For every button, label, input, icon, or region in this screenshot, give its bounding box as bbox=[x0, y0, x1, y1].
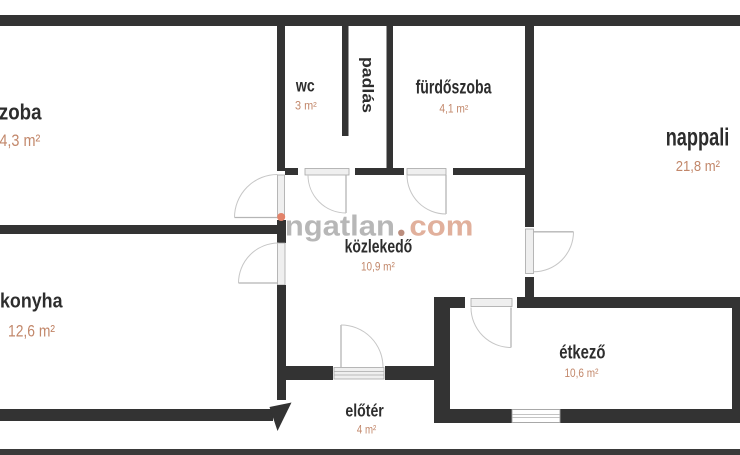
svg-text:3 m²: 3 m² bbox=[295, 101, 317, 113]
svg-text:ngatlan: ngatlan bbox=[285, 211, 395, 243]
svg-text:4 m²: 4 m² bbox=[357, 423, 376, 437]
svg-text:wc: wc bbox=[295, 76, 315, 96]
svg-text:fürdőszoba: fürdőszoba bbox=[416, 77, 492, 99]
svg-text:21,8 m²: 21,8 m² bbox=[676, 158, 720, 175]
svg-text:14,3 m²: 14,3 m² bbox=[0, 131, 41, 150]
svg-text:12,6 m²: 12,6 m² bbox=[8, 323, 55, 341]
svg-text:10,9 m²: 10,9 m² bbox=[361, 260, 395, 274]
svg-text:konyha: konyha bbox=[0, 291, 63, 313]
svg-text:nappali: nappali bbox=[666, 124, 730, 152]
svg-text:étkező: étkező bbox=[559, 343, 605, 364]
svg-text:előtér: előtér bbox=[345, 401, 384, 421]
svg-text:com: com bbox=[409, 211, 473, 243]
svg-text:4,1 m²: 4,1 m² bbox=[439, 104, 468, 116]
svg-text:padlás: padlás bbox=[359, 57, 376, 113]
svg-text:10,6 m²: 10,6 m² bbox=[565, 366, 599, 380]
svg-text:szoba: szoba bbox=[0, 100, 42, 125]
